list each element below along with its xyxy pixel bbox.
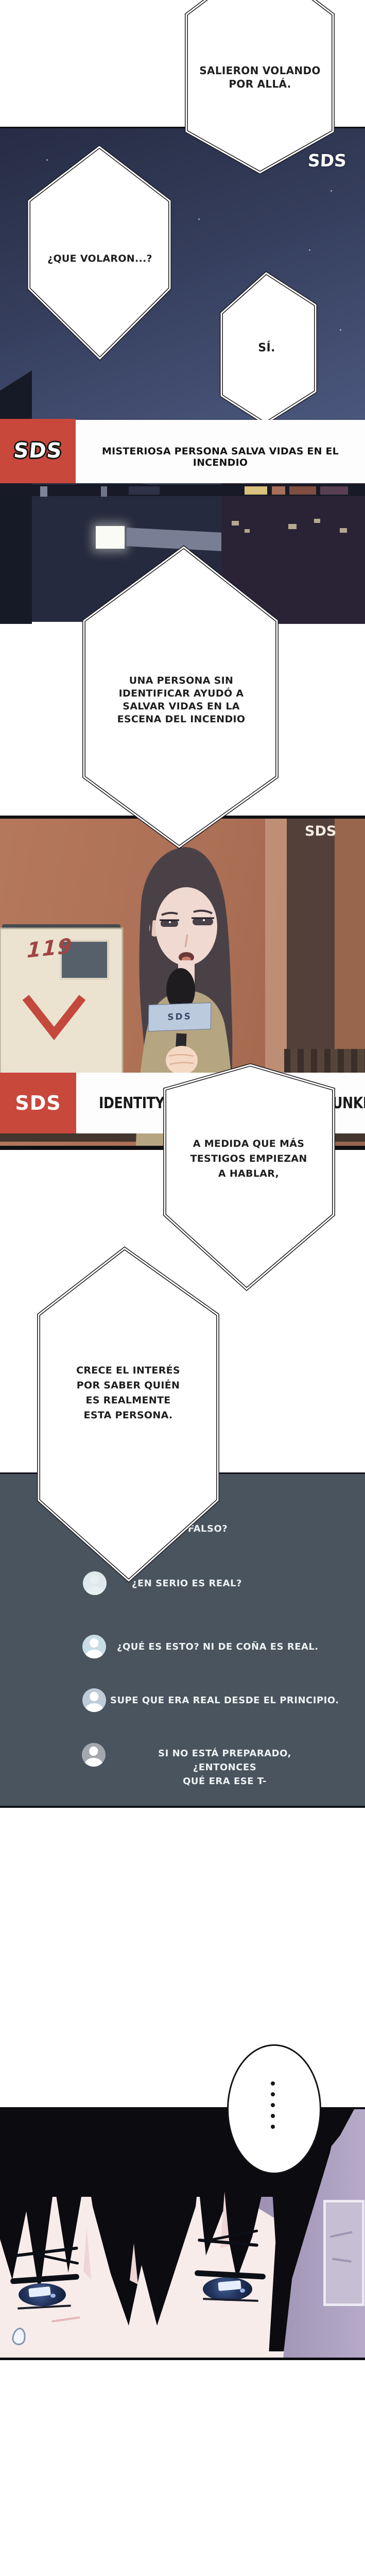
user-avatar bbox=[82, 1743, 106, 1767]
webtoon-page: SDS ¿QUE VOLARON...? SÍ. SALIERON VOLAND… bbox=[0, 0, 365, 2576]
person-icon bbox=[89, 1747, 98, 1755]
sds-logo-box: SDS bbox=[0, 419, 76, 483]
chat-message: SI NO ESTÁ PREPARADO, ¿ENTONCES QUÉ ERA … bbox=[126, 1747, 324, 1788]
star-dot bbox=[198, 218, 200, 220]
sds-logo-box: SDS bbox=[0, 1073, 76, 1133]
user-avatar bbox=[82, 1688, 106, 1712]
chat-message: SUPE QUE ERA REAL DESDE EL PRINCIPIO. bbox=[110, 1695, 339, 1706]
user-avatar bbox=[82, 1635, 106, 1658]
news-banner: MISTERIOSA PERSONA SALVA VIDAS EN EL INC… bbox=[76, 420, 365, 483]
person-icon bbox=[85, 1703, 103, 1712]
person-icon bbox=[85, 1758, 102, 1767]
mic-flag-label: SDS bbox=[167, 1011, 192, 1023]
speech-text: SÍ. bbox=[258, 342, 275, 354]
person-icon bbox=[90, 1638, 98, 1647]
star-dot bbox=[331, 190, 332, 192]
building-left bbox=[0, 370, 32, 624]
star-dot bbox=[340, 329, 341, 331]
speech-text: UNA PERSONA SIN IDENTIFICAR AYUDÓ A SALV… bbox=[117, 674, 246, 726]
sds-logo: SDS bbox=[0, 1073, 76, 1133]
news-headline: MISTERIOSA PERSONA SALVA VIDAS EN EL INC… bbox=[76, 446, 365, 468]
star-dot bbox=[309, 249, 310, 251]
left-eye-glint bbox=[50, 2294, 56, 2298]
ellipsis-dots bbox=[270, 2081, 276, 2136]
sds-logo: SDS bbox=[0, 419, 78, 483]
ambulance-number: 119 bbox=[26, 934, 73, 963]
right-eye-glint bbox=[240, 2289, 245, 2293]
person-icon bbox=[85, 1650, 103, 1658]
mic-flag: SDS bbox=[148, 1003, 212, 1031]
speech-text: CRECE EL INTERÉS POR SABER QUIÉN ES REAL… bbox=[76, 1363, 180, 1423]
sds-tv-watermark: SDS bbox=[305, 823, 336, 839]
speech-text: SALIERON VOLANDO POR ALLÁ. bbox=[199, 64, 320, 91]
chat-message: ¿QUÉ ES ESTO? NI DE COÑA ES REAL. bbox=[117, 1641, 319, 1652]
wall-picture-frame bbox=[323, 2200, 364, 2306]
speech-text: ¿QUE VOLARON...? bbox=[47, 253, 152, 264]
speech-text: A MEDIDA QUE MÁS TESTIGOS EMPIEZAN A HAB… bbox=[190, 1137, 307, 1181]
storefront-strip bbox=[0, 485, 365, 496]
person-icon bbox=[90, 1692, 98, 1701]
